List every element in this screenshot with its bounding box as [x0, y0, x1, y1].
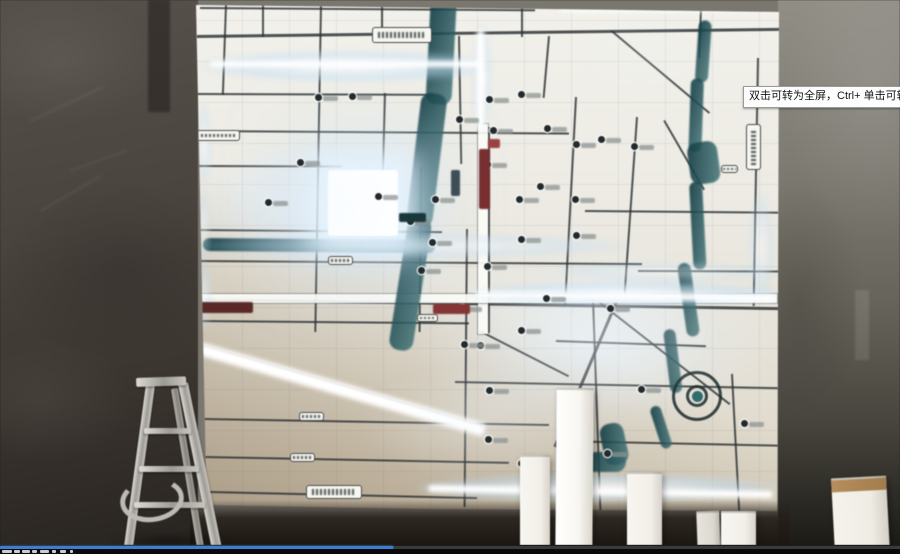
map-marker-label — [749, 422, 764, 427]
map-marker-label — [383, 195, 398, 200]
footer-text-glyph — [32, 550, 37, 553]
foam-block — [555, 388, 593, 545]
ladder-step — [144, 428, 191, 434]
map-marker-label — [464, 118, 479, 123]
road-name-label — [417, 314, 438, 322]
foam-block-top-face — [831, 478, 887, 493]
map-marker-label — [469, 343, 484, 348]
map-marker — [573, 141, 580, 148]
map-marker — [315, 94, 322, 101]
project-banner — [433, 304, 470, 314]
map-marker — [516, 196, 523, 203]
road-name-label — [746, 124, 761, 170]
map-marker-label — [646, 388, 661, 393]
light-wash — [560, 20, 720, 100]
map-marker-label — [323, 96, 338, 101]
map-marker-label — [492, 163, 507, 168]
map-marker — [638, 386, 645, 393]
led-glow-core — [477, 30, 484, 130]
fullscreen-tooltip-text: 双击可转为全屏，Ctrl+ 单击可转为 — [749, 90, 900, 102]
map-marker-label — [273, 201, 288, 206]
fullscreen-tooltip: 双击可转为全屏，Ctrl+ 单击可转为 — [743, 86, 900, 108]
project-banner — [451, 170, 460, 196]
light-wash — [190, 135, 410, 275]
map-marker — [429, 239, 436, 246]
map-marker — [537, 183, 544, 190]
footer-text-glyph — [14, 550, 20, 553]
map-marker-label — [492, 265, 507, 270]
map-marker-label — [493, 438, 508, 443]
foam-block — [627, 472, 662, 545]
footer-text-glyph — [60, 550, 66, 553]
map-marker — [484, 263, 491, 270]
foam-block — [721, 511, 756, 545]
map-marker-label — [552, 127, 567, 132]
map-marker-label — [524, 198, 539, 203]
map-marker — [518, 91, 525, 98]
map-marker — [265, 199, 272, 206]
map-marker — [490, 127, 497, 134]
map-marker — [607, 305, 614, 312]
map-marker — [486, 387, 493, 394]
footer-text-glyph — [22, 550, 30, 553]
project-banner — [488, 139, 500, 148]
map-marker — [543, 295, 550, 302]
road-name-label — [290, 453, 315, 462]
map-marker-label — [581, 143, 596, 148]
map-marker — [297, 159, 304, 166]
map-marker — [741, 420, 748, 427]
wall-right — [778, 0, 900, 545]
wall-mark — [148, 0, 170, 112]
map-marker-label — [437, 241, 452, 246]
map-marker-label — [357, 95, 372, 100]
map-marker-label — [580, 198, 595, 203]
map-marker-label — [545, 185, 560, 190]
player-footer — [0, 549, 900, 554]
road-name-label — [372, 27, 432, 43]
map-marker-label — [612, 452, 627, 457]
ladder-top-cap — [136, 376, 186, 387]
video-player: 双击可转为全屏，Ctrl+ 单击可转为 — [0, 0, 900, 554]
map-marker-label — [615, 307, 630, 312]
ladder-step — [139, 466, 199, 472]
road-name-label — [196, 130, 240, 141]
map-marker — [572, 196, 579, 203]
illuminated-map-board — [195, 2, 779, 513]
map-marker-label — [440, 198, 455, 203]
road-name-label — [306, 485, 362, 499]
map-marker — [544, 125, 551, 132]
foam-block — [831, 476, 890, 545]
led-glow-strip — [748, 192, 774, 302]
map-marker-label — [526, 238, 541, 243]
project-banner — [196, 302, 253, 313]
footer-text-glyph — [40, 550, 49, 553]
map-marker — [573, 232, 580, 239]
footer-text-glyph — [52, 550, 56, 553]
map-marker — [349, 93, 356, 100]
led-glow-core — [210, 61, 482, 67]
project-banner — [399, 213, 426, 222]
map-marker — [418, 267, 425, 274]
footer-text-glyph — [70, 550, 73, 553]
map-river — [686, 140, 722, 186]
map-marker-label — [606, 138, 621, 143]
map-marker — [604, 450, 611, 457]
map-marker-label — [494, 389, 509, 394]
map-marker-label — [498, 129, 513, 134]
map-marker — [461, 341, 468, 348]
map-marker-label — [526, 93, 541, 98]
map-road — [521, 5, 523, 37]
map-marker — [456, 116, 463, 123]
map-marker — [486, 96, 493, 103]
map-marker-label — [305, 161, 320, 166]
map-marker — [432, 196, 439, 203]
project-banner — [479, 149, 490, 209]
map-marker — [631, 143, 638, 150]
map-marker-label — [526, 329, 541, 334]
map-marker — [518, 327, 525, 334]
map-marker — [598, 136, 605, 143]
map-marker-label — [551, 297, 566, 302]
footer-text-glyph — [2, 550, 12, 553]
map-marker-label — [639, 145, 654, 150]
map-marker — [375, 193, 382, 200]
road-name-label — [299, 412, 324, 421]
map-marker-label — [494, 98, 509, 103]
foam-block — [696, 511, 720, 545]
video-frame-photo[interactable] — [0, 0, 900, 545]
map-marker — [485, 436, 492, 443]
map-marker-label — [426, 269, 441, 274]
wall-mark — [855, 290, 869, 360]
map-marker-label — [485, 344, 500, 349]
map-road — [262, 5, 264, 37]
map-marker-label — [581, 234, 596, 239]
map-marker — [518, 236, 525, 243]
road-name-label — [328, 256, 353, 265]
road-name-label — [721, 165, 738, 173]
led-glow-core — [560, 9, 778, 12]
foam-block — [520, 455, 550, 545]
